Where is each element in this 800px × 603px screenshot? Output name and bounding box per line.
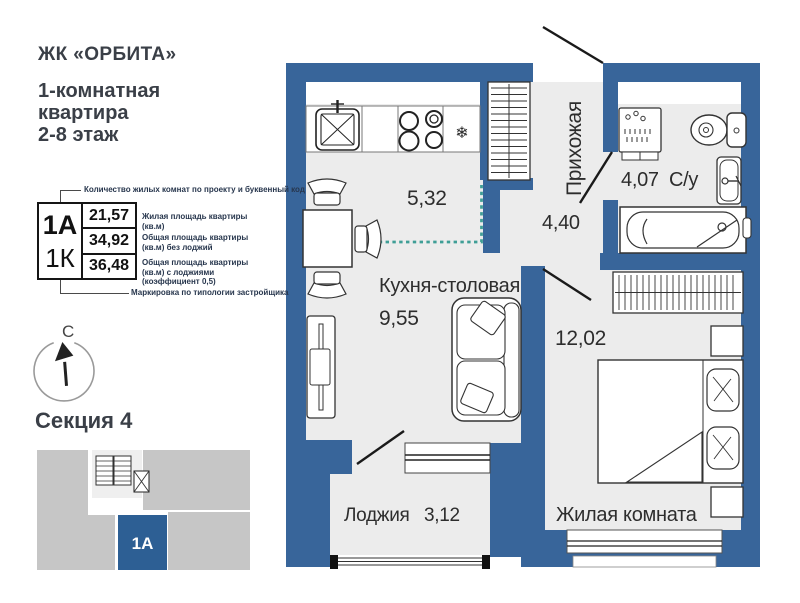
legend-bottom-leader-line — [60, 280, 129, 294]
section-unit-label: 1А — [132, 534, 154, 553]
spec-label-total-area-loggia: Общая площадь квартиры (кв.м) с лоджиями… — [142, 258, 264, 287]
nightstand-bottom — [711, 487, 743, 517]
kitchen-zone-area-label: 5,32 — [407, 187, 447, 210]
wall-top-bathroom — [603, 63, 760, 82]
bathroom-niche — [618, 82, 741, 104]
section-block — [143, 450, 250, 510]
bathroom-name-label: С/у — [669, 169, 698, 191]
fridge-snowflake-icon: ❄ — [455, 125, 468, 142]
kitchen-niche — [306, 82, 480, 104]
stairs-icon — [96, 456, 131, 485]
apartment-title: 1-комнатная квартира 2-8 этаж — [38, 80, 160, 146]
apartment-title-line1: 1-комнатная — [38, 80, 160, 102]
bathroom-area-label: 4,07 — [621, 169, 659, 191]
wall-left — [286, 63, 306, 567]
section-diagram: 1А — [37, 450, 250, 570]
spec-value-total-area: 34,92 — [83, 229, 135, 254]
living-room-area-label: 12,02 — [555, 327, 606, 350]
elevator-icon — [134, 471, 149, 492]
apartment-spec-box: 1А 1К 21,57 34,92 36,48 — [37, 202, 137, 280]
entry-door-swing — [543, 27, 603, 63]
loggia-area-label: 3,12 — [424, 505, 460, 526]
sofa-icon — [452, 298, 521, 421]
wall-loggia-left — [306, 474, 330, 567]
hallway-name-label: Прихожая — [563, 101, 586, 196]
spec-label-total-area: Общая площадь квартиры (кв.м) без лоджий — [142, 233, 264, 252]
floorplan-page: ❄ — [0, 0, 800, 603]
spec-codes: 1А 1К — [39, 204, 83, 278]
north-arrow-icon — [52, 341, 77, 387]
loggia-glazing — [330, 555, 490, 569]
spec-value-living-area: 21,57 — [83, 204, 135, 229]
spec-code-primary: 1А — [43, 208, 78, 242]
wall-top-kitchen — [286, 63, 533, 82]
nightstand-top — [711, 326, 743, 356]
spec-values: 21,57 34,92 36,48 — [83, 204, 135, 278]
kitchen-dining-name-label: Кухня-столовая — [379, 275, 520, 297]
apartment-title-line2: квартира — [38, 102, 160, 124]
bed-icon — [598, 360, 743, 483]
bathtub-icon — [620, 207, 751, 253]
spec-code-secondary: 1К — [45, 242, 75, 274]
dining-table — [303, 210, 352, 267]
brand-title: ЖК «ОРБИТА» — [38, 44, 176, 66]
wall-bath-bedroom — [600, 253, 741, 270]
bathroom-sink-icon — [717, 157, 741, 204]
hallway-wardrobe-icon — [488, 82, 530, 180]
legend-top-label: Количество жилых комнат по проекту и бук… — [84, 185, 305, 194]
wall-dining-bedroom — [521, 266, 545, 567]
spec-value-total-area-loggia: 36,48 — [83, 255, 135, 278]
toilet-icon — [691, 113, 746, 147]
bedroom-wardrobe-icon — [613, 272, 743, 313]
kitchen-dining-area-label: 9,55 — [379, 307, 419, 330]
legend-bottom-label: Маркировка по типологии застройщика — [131, 288, 288, 297]
compass — [34, 341, 94, 401]
spec-label-living-area: Жилая площадь квартиры (кв.м) — [142, 212, 264, 231]
hallway-area-label: 4,40 — [542, 212, 580, 234]
section-title: Секция 4 — [35, 408, 132, 434]
living-room-name-label: Жилая комната — [556, 504, 698, 526]
section-block — [168, 512, 250, 570]
tv-stand — [307, 316, 335, 418]
loggia-name-label: Лоджия — [344, 505, 410, 526]
bedroom-window — [567, 530, 722, 567]
section-block — [63, 515, 115, 570]
apartment-title-line3: 2-8 этаж — [38, 124, 160, 146]
compass-north-label: С — [62, 322, 74, 342]
washing-machine-icon — [619, 108, 661, 160]
loggia-window — [405, 443, 490, 473]
wall-loggia-right — [490, 443, 521, 557]
